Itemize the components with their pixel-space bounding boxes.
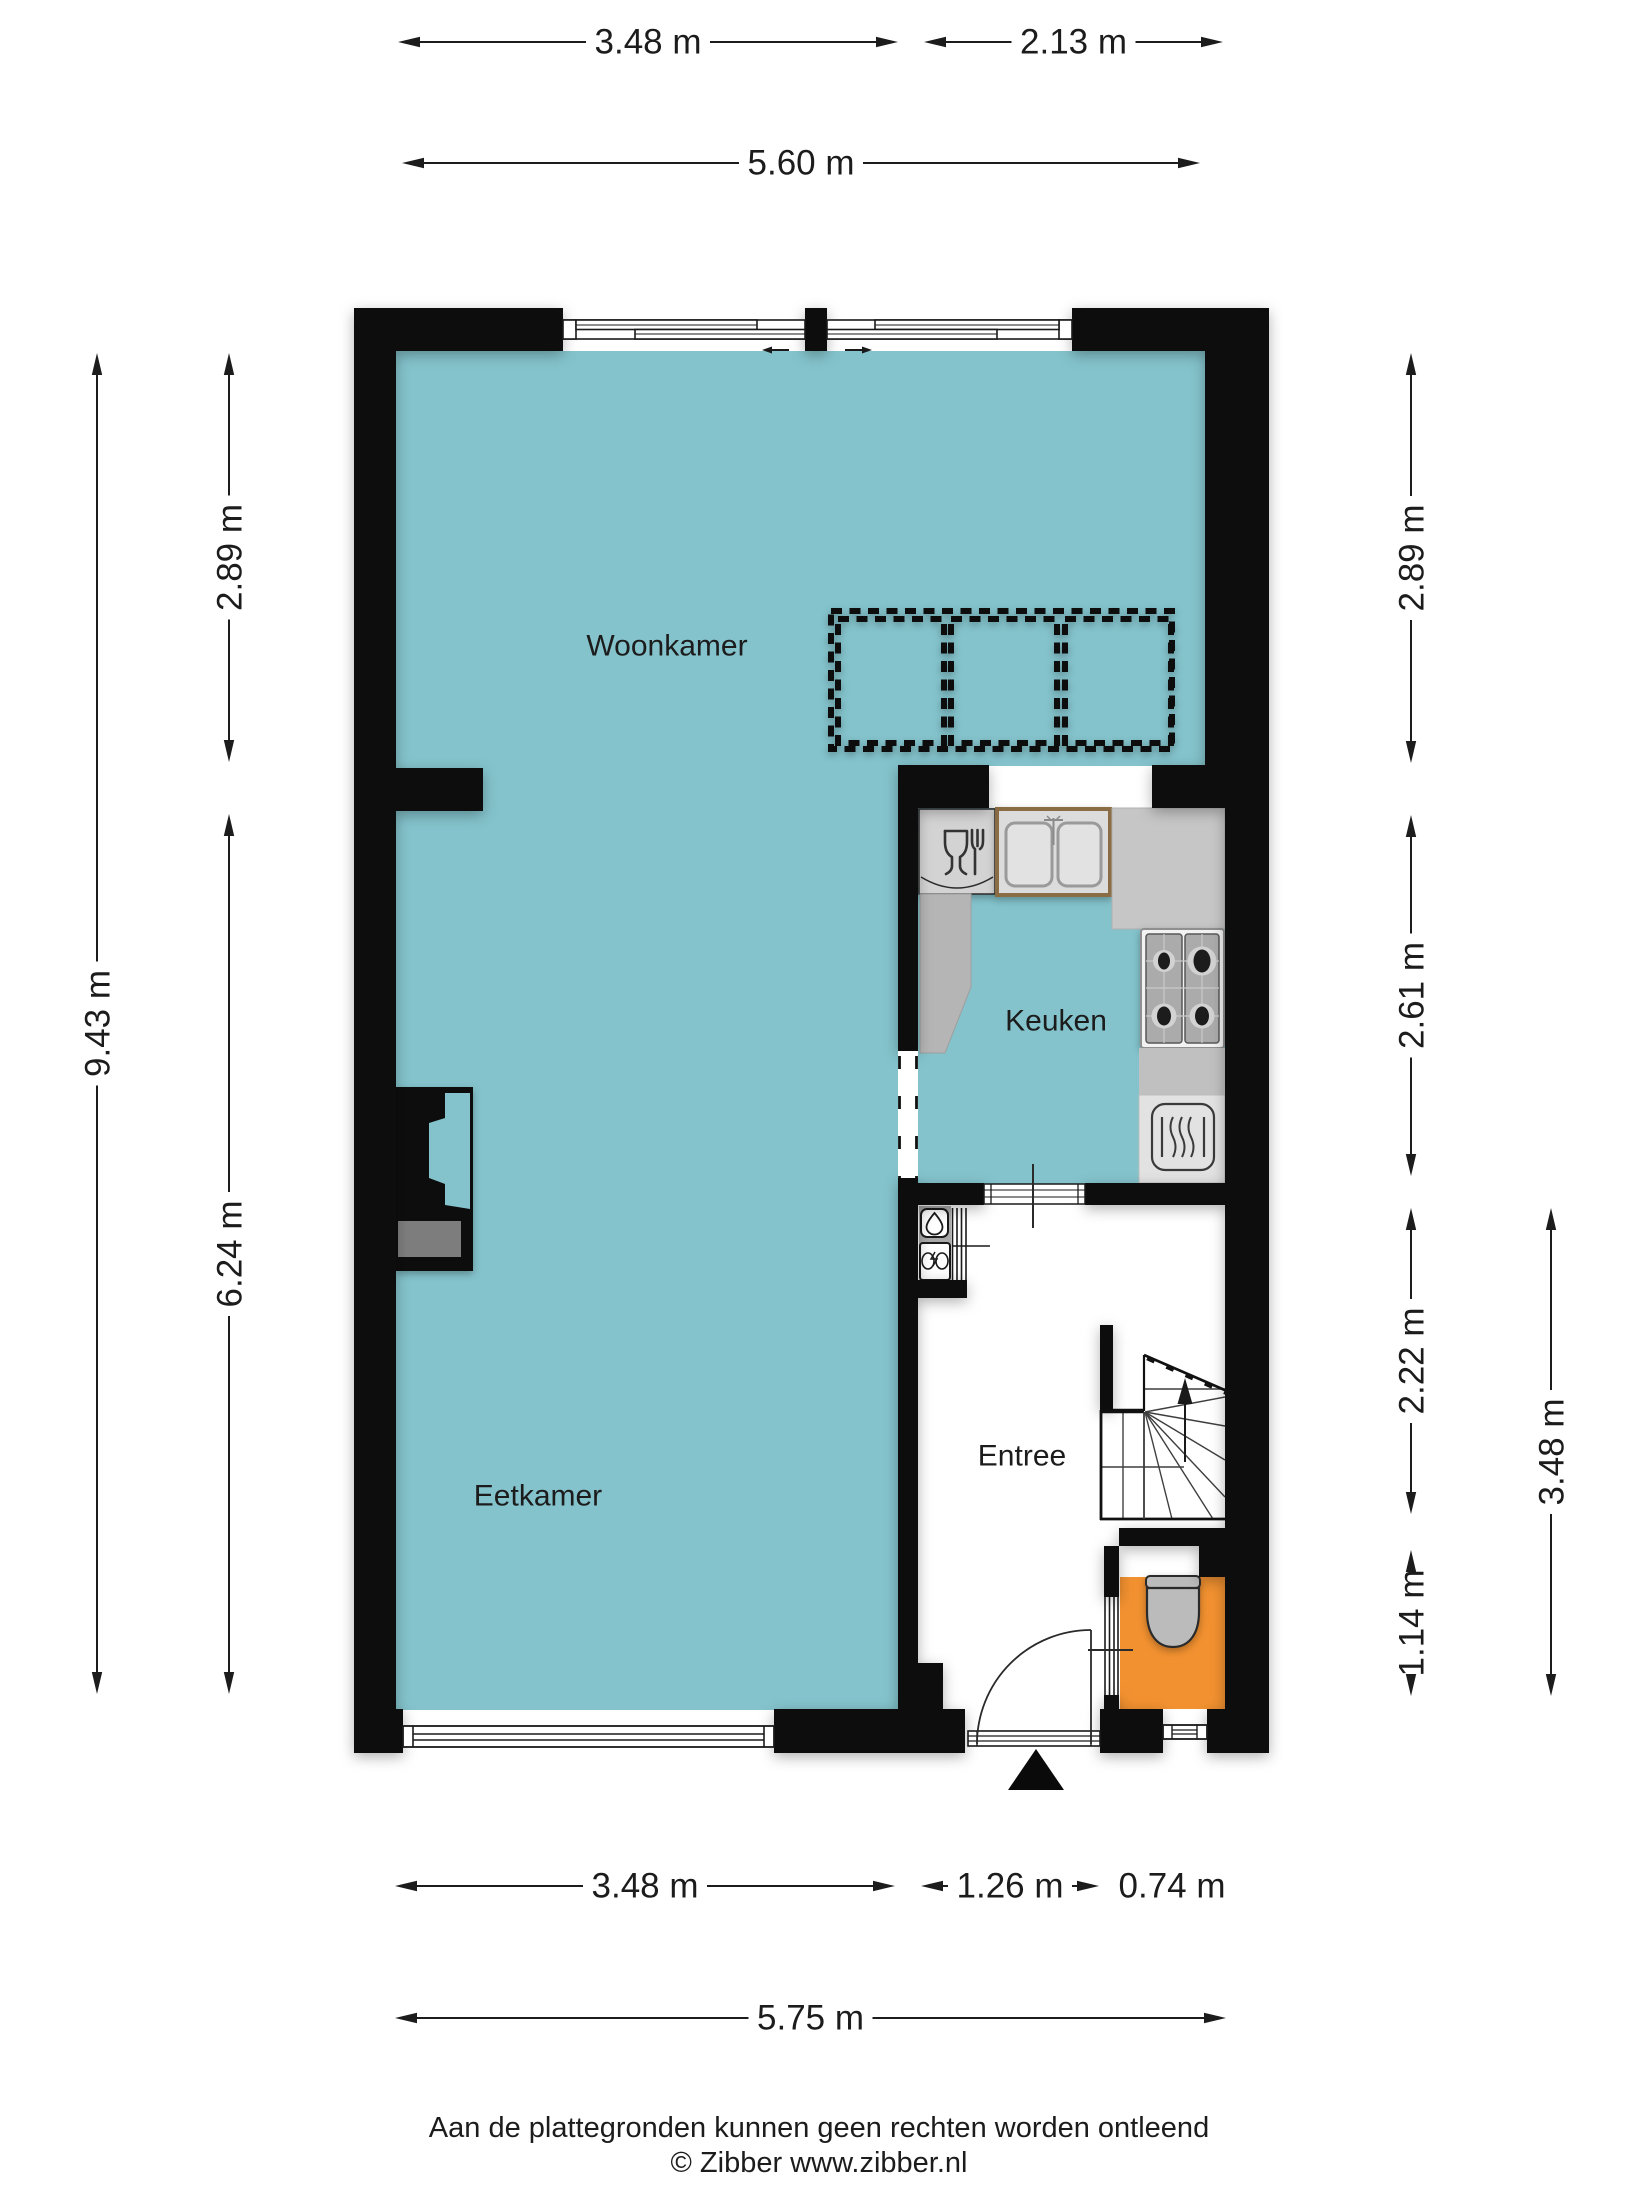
svg-text:6.24 m: 6.24 m	[211, 1201, 250, 1308]
svg-text:2.89 m: 2.89 m	[1393, 505, 1432, 612]
svg-text:1.26 m: 1.26 m	[957, 1867, 1064, 1906]
svg-text:1.14 m: 1.14 m	[1393, 1570, 1432, 1677]
svg-text:Entree: Entree	[978, 1440, 1066, 1473]
svg-text:0.74 m: 0.74 m	[1119, 1867, 1226, 1906]
svg-text:Keuken: Keuken	[1005, 1005, 1107, 1038]
svg-text:Woonkamer: Woonkamer	[586, 630, 747, 663]
svg-text:Eetkamer: Eetkamer	[474, 1480, 602, 1513]
svg-text:3.48 m: 3.48 m	[592, 1867, 699, 1906]
svg-text:© Zibber www.zibber.nl: © Zibber www.zibber.nl	[671, 2147, 968, 2179]
svg-text:2.22 m: 2.22 m	[1393, 1308, 1432, 1415]
svg-text:2.13 m: 2.13 m	[1020, 23, 1127, 62]
svg-text:Aan de plattegronden kunnen ge: Aan de plattegronden kunnen geen rechten…	[429, 2112, 1209, 2144]
svg-text:3.48 m: 3.48 m	[1533, 1399, 1572, 1506]
svg-text:5.60 m: 5.60 m	[748, 144, 855, 183]
svg-text:5.75 m: 5.75 m	[757, 1999, 864, 2038]
svg-text:9.43 m: 9.43 m	[79, 970, 118, 1077]
svg-text:2.89 m: 2.89 m	[211, 504, 250, 611]
svg-text:2.61 m: 2.61 m	[1393, 942, 1432, 1049]
svg-text:3.48 m: 3.48 m	[595, 23, 702, 62]
